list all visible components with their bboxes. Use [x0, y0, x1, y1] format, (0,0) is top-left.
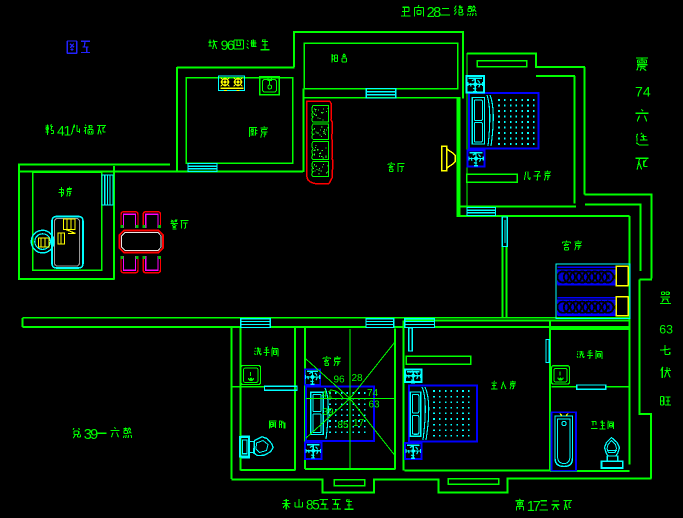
svg-text:5: 5	[312, 498, 320, 513]
svg-text:74: 74	[367, 388, 379, 399]
svg-text:28: 28	[352, 373, 364, 384]
svg-text:9: 9	[90, 427, 98, 443]
svg-text:63: 63	[369, 400, 381, 411]
svg-text:85: 85	[338, 420, 350, 431]
svg-text:1: 1	[64, 123, 72, 139]
svg-text:63: 63	[659, 322, 673, 336]
svg-text:74: 74	[635, 84, 651, 100]
svg-text:96: 96	[334, 375, 346, 386]
svg-text:7: 7	[533, 499, 541, 515]
svg-text:17: 17	[353, 418, 365, 429]
svg-text:8: 8	[433, 5, 441, 21]
svg-text:41: 41	[322, 390, 334, 401]
svg-text:39: 39	[323, 407, 335, 418]
